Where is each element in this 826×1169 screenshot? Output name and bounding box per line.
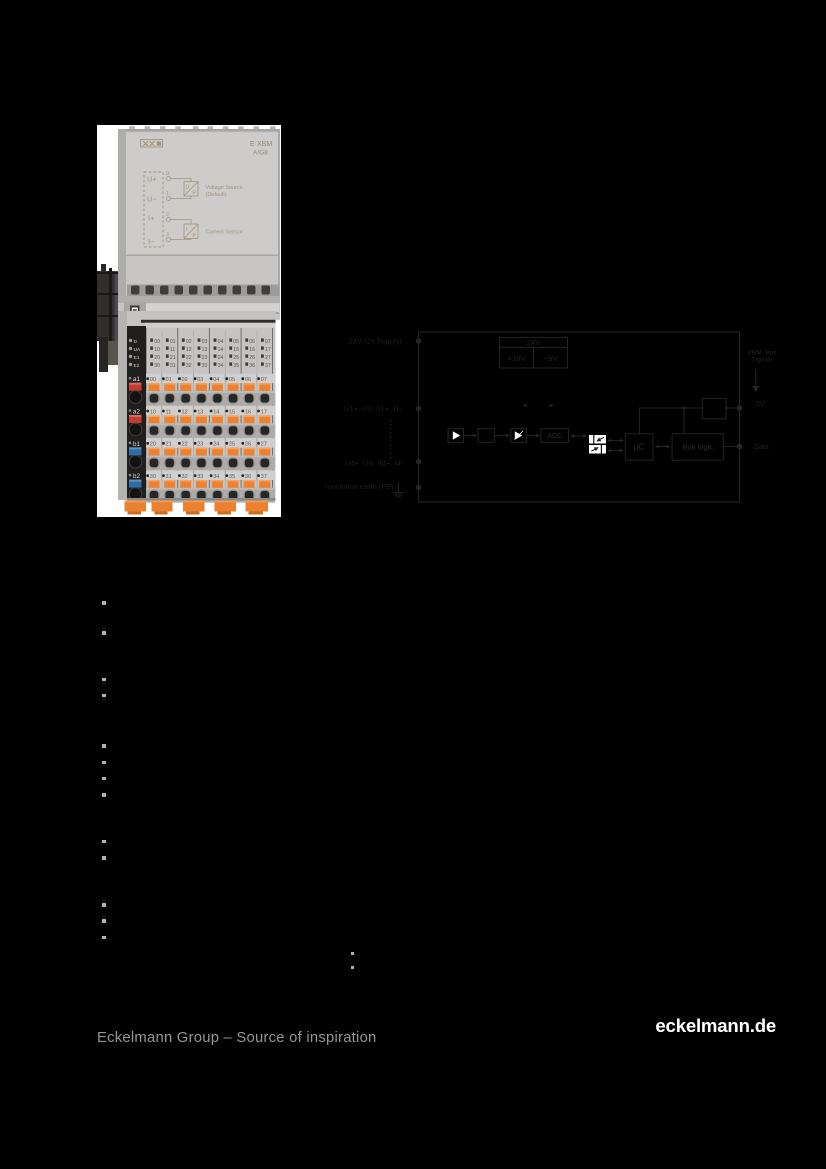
svg-text:U4+, U4- /I4+, I4-: U4+, U4- /I4+, I4- [345,459,403,468]
svg-text:30: 30 [150,474,156,480]
svg-text:15: 15 [229,409,235,415]
svg-text:34: 34 [218,363,224,369]
svg-text:31: 31 [170,363,176,369]
svg-text:U: U [186,185,190,191]
svg-text:32: 32 [186,363,192,369]
svg-text:00: 00 [154,339,160,345]
svg-text:30: 30 [154,363,160,369]
svg-text:(Default): (Default) [206,192,227,198]
svg-text:E1: E1 [134,355,140,361]
svg-text:34: 34 [213,474,219,480]
svg-text:U1+, U1- /I1+, I1-: U1+, U1- /I1+, I1- [344,404,402,413]
svg-text:Voltage Source: Voltage Source [206,185,243,191]
svg-text:1: 1 [166,191,169,197]
svg-text:U+: U+ [147,175,157,184]
svg-text:10: 10 [150,409,156,415]
svg-text:b1: b1 [133,441,140,448]
svg-text:06: 06 [249,339,255,345]
svg-text:2: 2 [166,212,169,218]
svg-text:31: 31 [166,474,172,480]
svg-text:b2: b2 [133,473,140,480]
svg-text:12: 12 [186,347,192,353]
svg-text:I−: I− [148,237,155,246]
svg-text:I: I [186,227,187,233]
svg-text:25: 25 [233,355,239,361]
svg-text:25: 25 [229,442,235,448]
svg-text:07: 07 [261,377,267,383]
svg-text:26: 26 [245,442,251,448]
svg-text:07: 07 [265,339,271,345]
svg-text:Bus logic: Bus logic [682,443,713,452]
svg-text:22: 22 [182,442,188,448]
svg-text:24: 24 [218,355,224,361]
svg-text:36: 36 [249,363,255,369]
svg-text:U−: U− [147,195,157,204]
svg-text:00: 00 [150,377,156,383]
svg-text:24: 24 [213,442,219,448]
svg-text:14: 14 [218,347,224,353]
svg-text:13: 13 [202,347,208,353]
svg-text:05: 05 [233,339,239,345]
svg-text:−5V: −5V [544,354,558,363]
svg-text:11: 11 [166,409,172,415]
svg-text:23: 23 [197,442,203,448]
svg-text:Functional earth (FE): Functional earth (FE) [325,482,394,491]
svg-text:0: 0 [166,171,169,177]
svg-text:16: 16 [245,409,251,415]
svg-text:15: 15 [233,347,239,353]
svg-text:17: 17 [261,409,267,415]
svg-text:02: 02 [182,377,188,383]
svg-text:23: 23 [202,355,208,361]
svg-text:16: 16 [249,347,255,353]
svg-text:11: 11 [170,347,175,353]
svg-text:35: 35 [229,474,235,480]
svg-text:12: 12 [182,409,188,415]
svg-text:03: 03 [202,339,208,345]
svg-text:33: 33 [197,474,203,480]
svg-text:Signals: Signals [751,357,773,364]
svg-text:ADC: ADC [547,433,562,440]
svg-text:21: 21 [170,355,176,361]
svg-text:20: 20 [154,355,160,361]
svg-text:E·XBM: E·XBM [250,141,272,148]
svg-text:14: 14 [213,409,219,415]
svg-text:Current Sensor: Current Sensor [206,230,243,236]
svg-text:32: 32 [182,474,188,480]
svg-text:02: 02 [186,339,192,345]
svg-text:22: 22 [186,355,192,361]
svg-text:I+: I+ [148,214,155,223]
svg-text:06: 06 [245,377,251,383]
svg-text:03: 03 [197,377,203,383]
svg-text:A/G8: A/G8 [253,150,268,157]
svg-text:20: 20 [150,442,156,448]
svg-text:37: 37 [265,363,271,369]
svg-text:01: 01 [166,377,172,383]
svg-text:a1: a1 [133,376,140,383]
svg-text:35: 35 [233,363,239,369]
svg-text:XBM Bus: XBM Bus [748,349,778,356]
svg-text:13: 13 [197,409,203,415]
svg-text:24V (2x Supply): 24V (2x Supply) [349,337,403,346]
svg-text:21: 21 [166,442,172,448]
svg-text:µC: µC [634,443,645,452]
svg-text:Data: Data [754,444,769,451]
svg-text:3: 3 [166,232,169,238]
svg-text:26: 26 [249,355,255,361]
svg-text:D: D [134,339,138,345]
svg-text:27: 27 [261,442,267,448]
svg-text:UA: UA [134,347,141,353]
svg-text:+10V: +10V [508,354,526,363]
svg-text:04: 04 [218,339,224,345]
svg-text:17: 17 [265,347,271,353]
svg-text:5V: 5V [756,401,765,408]
svg-text:27: 27 [265,355,271,361]
svg-text:37: 37 [261,474,267,480]
svg-text:E2: E2 [134,363,140,369]
svg-text:a2: a2 [133,409,140,416]
svg-text:36: 36 [245,474,251,480]
svg-text:10: 10 [154,347,160,353]
svg-text:24V: 24V [527,338,540,347]
svg-text:04: 04 [213,377,219,383]
svg-text:33: 33 [202,363,208,369]
svg-text:01: 01 [170,339,176,345]
svg-text:05: 05 [229,377,235,383]
